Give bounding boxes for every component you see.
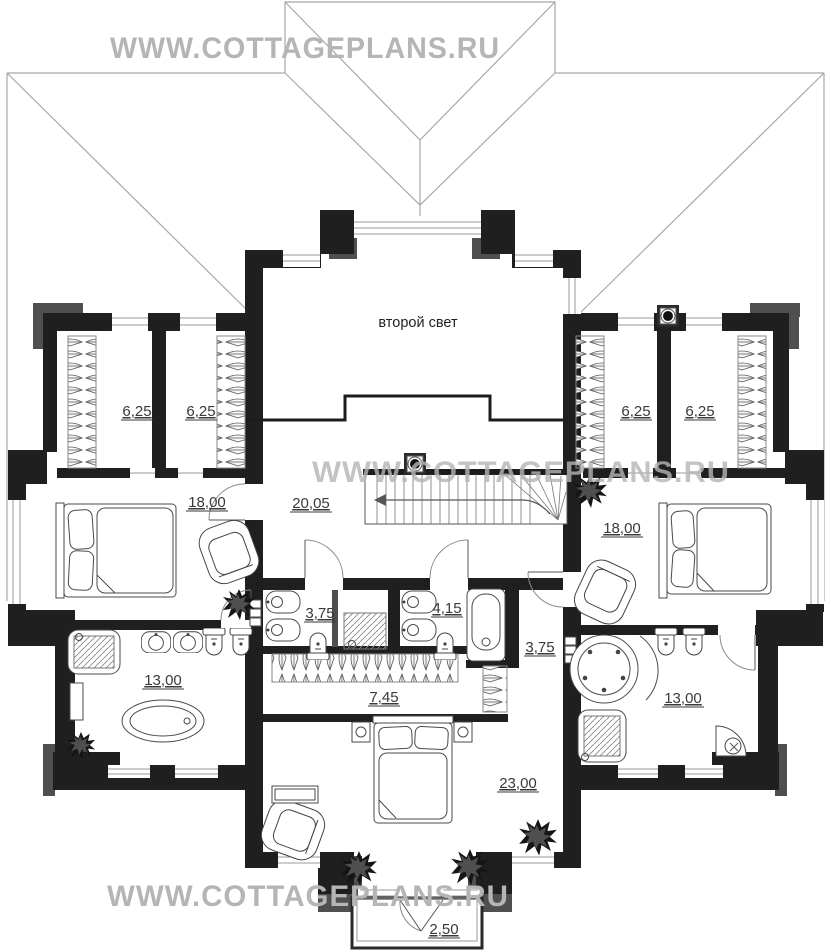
room-area-bath-master-left: 13,00 — [144, 672, 182, 689]
bed-double-right — [659, 503, 771, 598]
corner-sink-icon — [716, 726, 746, 756]
room-area-wardrobe-right-2: 6,25 — [685, 403, 714, 420]
bed-double-bottom — [352, 716, 472, 823]
bed-double-left — [56, 503, 176, 598]
sink-icon — [173, 632, 203, 653]
watermark-bottom: WWW.COTTAGEPLANS.RU — [107, 880, 509, 913]
room-area-wardrobe-right-1: 6,25 — [621, 403, 650, 420]
room-area-bath-left: 3,75 — [305, 605, 334, 622]
room-area-balcony: 2,50 — [429, 921, 458, 938]
bath-master-right-fixtures — [570, 628, 746, 762]
room-area-bedroom-left: 18,00 — [188, 494, 226, 511]
vent-icon — [657, 305, 679, 327]
toilet-icon — [307, 633, 329, 660]
watermark-top: WWW.COTTAGEPLANS.RU — [110, 32, 500, 65]
tv-cabinet — [272, 786, 318, 803]
shower-icon — [344, 613, 386, 649]
shower-icon — [584, 716, 620, 756]
floor-plan-drawing: второй свет 6,25 6,25 6,25 6,25 18,00 20… — [0, 0, 831, 952]
room-area-bedroom-right: 18,00 — [603, 520, 641, 537]
room-area-wardrobe-left-1: 6,25 — [122, 403, 151, 420]
second-light-edge — [245, 396, 563, 420]
cabinet — [70, 683, 83, 720]
room-area-bedroom-bottom: 23,00 — [499, 775, 537, 792]
second-light-label: второй свет — [378, 315, 458, 331]
toilet-icon — [655, 628, 677, 655]
floor-plan-page: второй свет 6,25 6,25 6,25 6,25 18,00 20… — [0, 0, 831, 952]
jacuzzi-icon — [570, 635, 638, 703]
sink-icon — [141, 632, 171, 653]
room-area-bath-master-right: 13,00 — [664, 690, 702, 707]
toilet-icon — [203, 628, 225, 655]
plant-icon — [519, 819, 557, 855]
toilet-icon — [434, 633, 456, 660]
toilet-icon — [683, 628, 705, 655]
room-area-bath-center: 4,15 — [432, 600, 461, 617]
room-area-corridor: 7,45 — [369, 689, 398, 706]
room-area-hall: 20,05 — [292, 495, 330, 512]
room-area-hallway-right: 3,75 — [525, 639, 554, 656]
watermark-middle: WWW.COTTAGEPLANS.RU — [312, 456, 730, 489]
room-area-wardrobe-left-2: 6,25 — [186, 403, 215, 420]
